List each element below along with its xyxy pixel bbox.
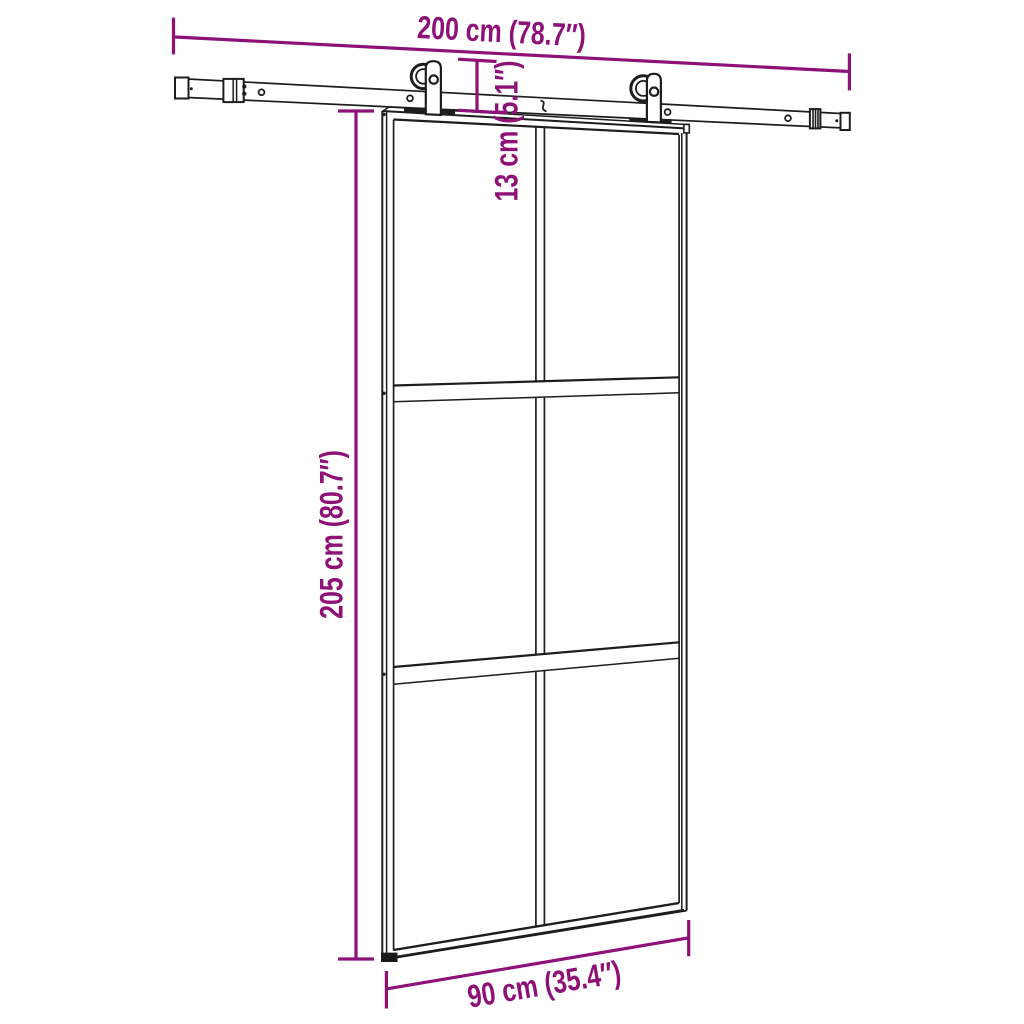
svg-text:13 cm (5.1″): 13 cm (5.1″) xyxy=(490,61,526,202)
svg-text:205 cm (80.7″): 205 cm (80.7″) xyxy=(315,450,351,619)
